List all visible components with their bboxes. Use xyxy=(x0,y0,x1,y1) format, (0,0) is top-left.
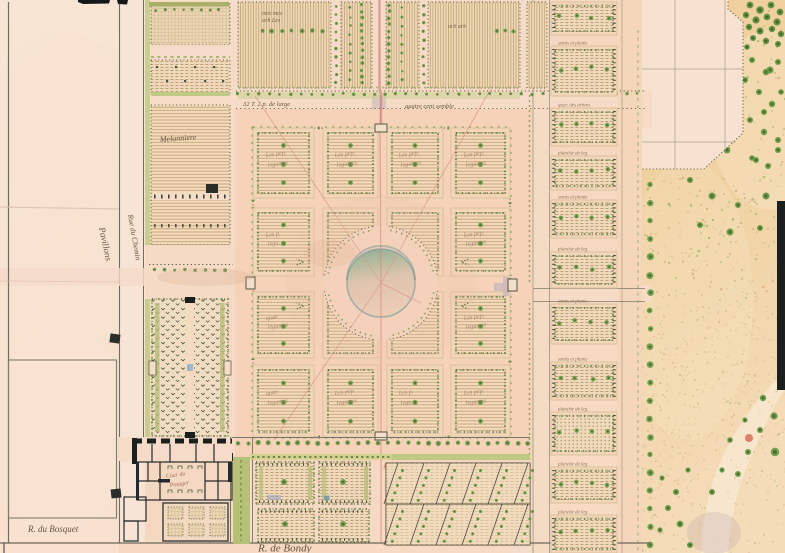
svg-text:semis et plants: semis et plants xyxy=(558,196,587,201)
svg-text:semis et plants: semis et plants xyxy=(558,358,587,363)
svg-text:semis et plants: semis et plants xyxy=(558,300,587,305)
svg-text:arb Les: arb Les xyxy=(262,18,281,24)
svg-text:legu.: legu. xyxy=(400,398,413,406)
svg-text:32 T. 2 p. de large: 32 T. 2 p. de large xyxy=(242,101,290,108)
svg-text:mes mes: mes mes xyxy=(262,11,283,17)
svg-text:legu.: legu. xyxy=(267,239,280,247)
svg-text:quar. des arbres: quar. des arbres xyxy=(558,104,590,109)
svg-text:R. de Bondy: R. de Bondy xyxy=(257,543,312,553)
svg-text:planche de leg.: planche de leg. xyxy=(557,463,588,468)
svg-text:semis et plants: semis et plants xyxy=(558,42,587,47)
svg-text:planche de leg.: planche de leg. xyxy=(557,152,588,157)
svg-text:planche de leg.: planche de leg. xyxy=(557,511,588,516)
svg-text:planche de leg.: planche de leg. xyxy=(557,408,588,413)
svg-text:quatre cent semble: quatre cent semble xyxy=(405,103,454,110)
svg-text:R. du Bosquet: R. du Bosquet xyxy=(27,524,79,534)
svg-text:planche de leg.: planche de leg. xyxy=(557,248,588,253)
svg-text:arb arb: arb arb xyxy=(448,24,466,30)
